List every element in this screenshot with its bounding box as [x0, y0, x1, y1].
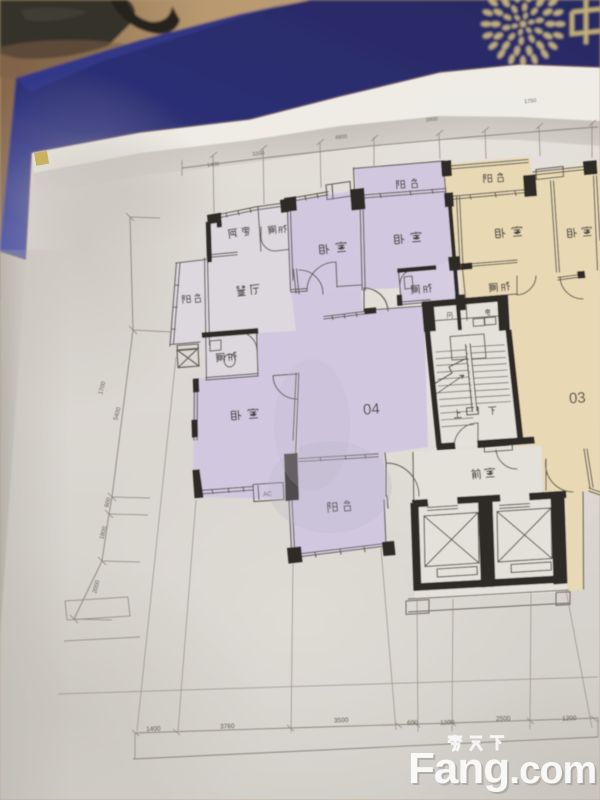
svg-text:600: 600: [407, 720, 418, 727]
svg-text:1400: 1400: [207, 162, 220, 169]
svg-text:2500: 2500: [496, 715, 511, 723]
svg-text:1200: 1200: [440, 719, 455, 727]
svg-text:03: 03: [568, 389, 586, 407]
svg-text:Fang.com: Fang.com: [408, 744, 596, 793]
svg-text:3300: 3300: [252, 151, 265, 158]
svg-text:3760: 3760: [220, 723, 235, 731]
svg-text:1400: 1400: [146, 726, 161, 734]
svg-text:04: 04: [362, 400, 380, 418]
svg-text:4800: 4800: [335, 134, 348, 141]
svg-text:1750: 1750: [524, 98, 537, 105]
svg-text:1200: 1200: [562, 715, 577, 723]
svg-text:3900: 3900: [425, 116, 438, 123]
svg-text:3500: 3500: [334, 717, 349, 725]
